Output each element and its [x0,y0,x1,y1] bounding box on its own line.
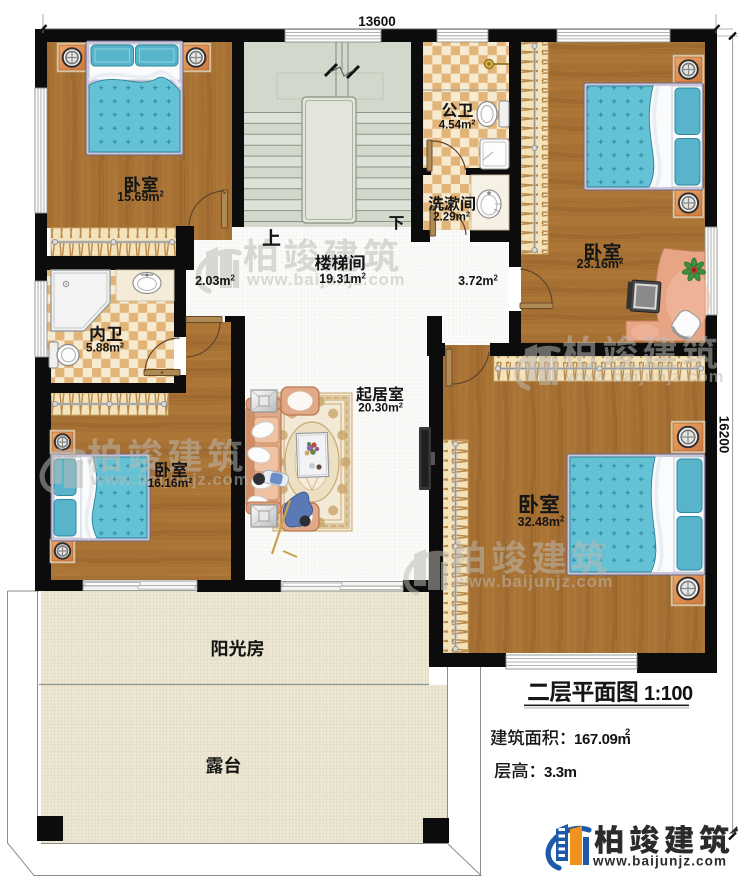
svg-text:19.31m2: 19.31m2 [319,272,366,286]
svg-text:32.48m2: 32.48m2 [518,515,565,529]
svg-text:20.30m2: 20.30m2 [358,400,403,414]
svg-text:2.29m2: 2.29m2 [433,211,470,224]
svg-text:www.baijunjz.com: www.baijunjz.com [454,573,613,591]
svg-text:16200: 16200 [717,416,732,454]
svg-text:16.16m2: 16.16m2 [148,476,193,490]
svg-text:3.72m2: 3.72m2 [458,274,498,288]
svg-text:23.16m2: 23.16m2 [577,257,624,271]
svg-text:3.3m: 3.3m [544,764,577,781]
svg-text:167.09m: 167.09m [574,731,630,748]
svg-text:4.54m2: 4.54m2 [439,119,476,132]
svg-text:5.88m2: 5.88m2 [86,340,124,354]
svg-text:www.baijunjz.com: www.baijunjz.com [592,854,727,869]
svg-text:13600: 13600 [358,14,396,29]
svg-text:2: 2 [625,727,630,738]
svg-text:www.baijunjz.com: www.baijunjz.com [565,368,724,386]
svg-text:2.03m2: 2.03m2 [195,274,235,288]
svg-text:15.69m2: 15.69m2 [117,190,164,204]
svg-text:1:100: 1:100 [644,683,693,705]
